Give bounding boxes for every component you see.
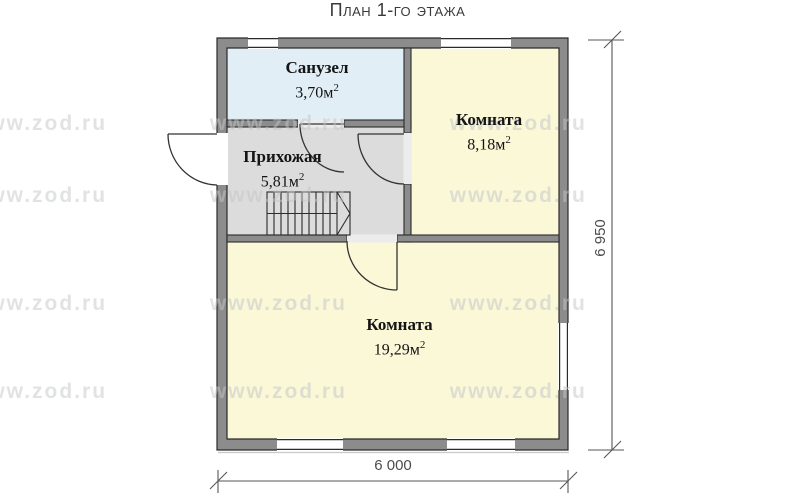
page-title: План 1-го этажа	[0, 0, 795, 21]
room-name: Комната	[409, 110, 569, 130]
room-area: 5,81м2	[220, 167, 345, 192]
dimension-width-label: 6 000	[218, 457, 568, 474]
window-bottom-right	[447, 438, 515, 451]
watermark-row: www.zod.ru www.zod.ru www.zod.ru	[0, 292, 795, 316]
watermark-row: www.zod.ru www.zod.ru www.zod.ru	[0, 112, 795, 136]
hallway-label: Прихожая 5,81м2	[220, 147, 345, 192]
window-top-large	[441, 37, 511, 49]
room-name: Комната	[227, 315, 572, 335]
window-top-small	[248, 37, 278, 49]
room-area: 8,18м2	[409, 130, 569, 155]
wall-hallway-left	[227, 235, 347, 242]
room-area: 19,29м2	[227, 335, 572, 360]
wall-hallway-right	[397, 235, 559, 242]
floor-plan-drawing	[0, 0, 795, 496]
dimension-height-label: 6 950	[592, 200, 610, 276]
floor-plan-page: www.zod.ru www.zod.ru www.zod.ru www.zod…	[0, 0, 795, 496]
entrance-door	[168, 134, 217, 185]
large-room-label: Комната 19,29м2	[227, 315, 572, 360]
watermark-row: www.zod.ru www.zod.ru www.zod.ru	[0, 380, 795, 404]
large-room-door-opening	[347, 234, 397, 242]
small-room-label: Комната 8,18м2	[409, 110, 569, 155]
room-name: Санузел	[237, 58, 397, 78]
window-bottom-left	[277, 438, 343, 451]
watermark-row: www.zod.ru www.zod.ru www.zod.ru	[0, 184, 795, 208]
entrance-door-arc	[168, 134, 217, 185]
room-area: 3,70м2	[237, 78, 397, 103]
bathroom-label: Санузел 3,70м2	[237, 58, 397, 103]
room-name: Прихожая	[220, 147, 345, 167]
